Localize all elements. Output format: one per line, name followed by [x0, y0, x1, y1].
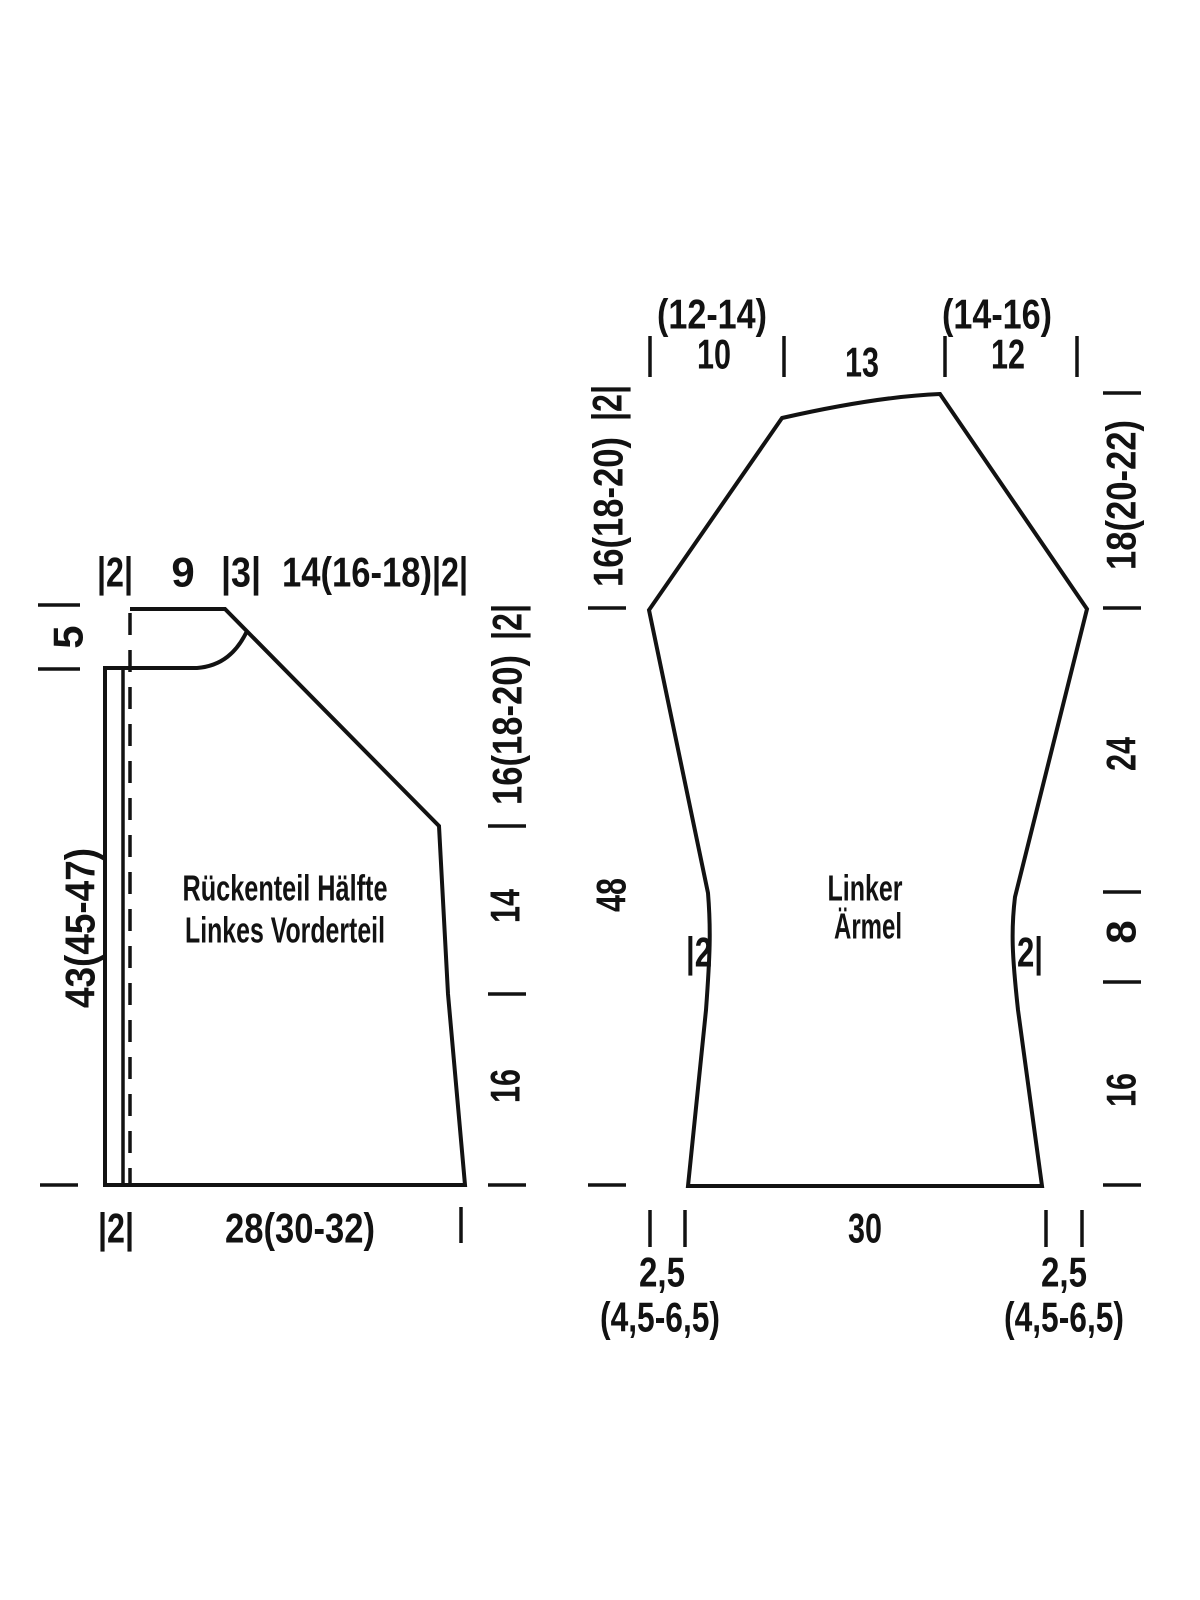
measure-right-8: 8 [1098, 920, 1145, 943]
measure-cap-10: 10 [697, 331, 731, 378]
measure-waist-left-2: |2 [686, 929, 712, 977]
pattern-schematic-page: |2|9|3|14(16-18)|2|543(45-47)|2|16(18-20… [0, 0, 1200, 1600]
measure-top-band: |2| [97, 549, 133, 597]
measure-right-14: 14 [482, 889, 529, 923]
measure-left-16-18-20: 16(18-20) [585, 437, 632, 587]
piece-title-line2: Ärmel [834, 906, 902, 947]
measure-collar-5: 5 [45, 625, 92, 648]
measure-right-16: 16 [1098, 1073, 1145, 1107]
measure-bottom-width: 28(30-32) [225, 1205, 375, 1252]
measure-top-9: 9 [171, 549, 194, 596]
measure-bottom-band: |2| [98, 1205, 134, 1253]
measure-right-18-20-22: 18(20-22) [1098, 420, 1145, 570]
piece-title-line1: Rückenteil Hälfte [183, 868, 388, 909]
measure-left-2: |2| [584, 385, 632, 421]
measure-cap-12: 12 [991, 331, 1025, 378]
measure-top-2: |2| [432, 549, 468, 597]
measure-cap-13: 13 [845, 339, 879, 386]
measure-cuff-right-25: 2,5 [1041, 1249, 1087, 1296]
measure-cuff-30: 30 [848, 1205, 882, 1252]
measure-top-shoulder: 14(16-18) [282, 549, 432, 596]
measure-right-24: 24 [1098, 737, 1145, 771]
measure-top-3: |3| [221, 549, 261, 597]
back-and-front-piece: |2|9|3|14(16-18)|2|543(45-47)|2|16(18-20… [38, 549, 532, 1253]
measure-cuff-left-25: 2,5 [639, 1249, 685, 1296]
measure-cuff-left-range: (4,5-6,5) [600, 1294, 720, 1341]
measure-length-43: 43(45-47) [57, 848, 104, 1008]
piece-title-line2: Linkes Vorderteil [185, 910, 385, 951]
measure-waist-right-2: 2| [1017, 929, 1043, 977]
sleeve-outline [649, 394, 1087, 1186]
piece-title-line1: Linker [828, 868, 903, 909]
measure-right-16: 16 [482, 1069, 529, 1103]
measure-cuff-right-range: (4,5-6,5) [1004, 1294, 1124, 1341]
measure-left-48: 48 [588, 878, 635, 912]
sleeve-piece: (12-14)1013(14-16)12|2|16(18-20)4818(20-… [584, 291, 1145, 1341]
measure-right-16-18-20: 16(18-20) [484, 655, 531, 805]
measure-right-2: |2| [484, 604, 532, 640]
schematic-canvas: |2|9|3|14(16-18)|2|543(45-47)|2|16(18-20… [0, 0, 1200, 1600]
